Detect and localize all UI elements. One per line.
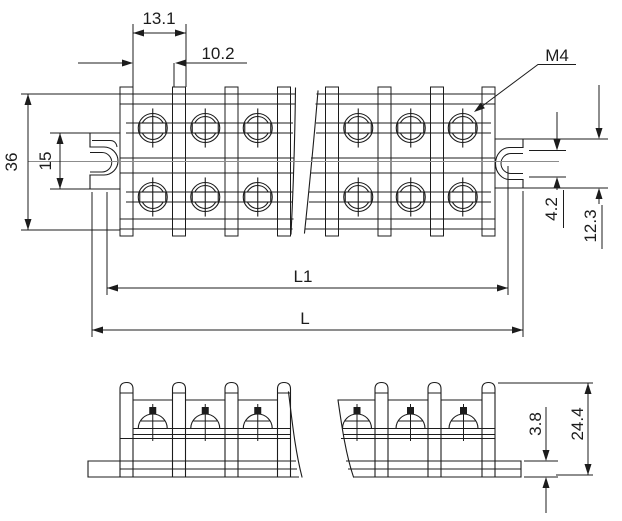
dim-base-thickness-label: 3.8 <box>526 412 545 436</box>
dim-clearance: 10.2 <box>78 44 247 87</box>
front-left-flange <box>88 461 120 477</box>
dim-right-ear-label: 12.3 <box>581 209 600 242</box>
terminal-screw <box>191 178 220 216</box>
break-line-left-half <box>291 88 296 234</box>
terminal-arch <box>138 404 167 441</box>
front-post <box>428 383 441 478</box>
dim-body-width: 36 <box>2 94 120 230</box>
mounting-ear-right <box>495 139 523 188</box>
dim-slot-height-label: 4.2 <box>542 197 561 221</box>
plan-left-center-band <box>120 158 294 173</box>
terminal-arch <box>191 404 220 441</box>
thread-label: M4 <box>545 46 569 65</box>
drawing-canvas: 13.1 10.2 M4 36 15 4.2 1 <box>0 0 622 521</box>
mounting-ear-left <box>90 133 120 189</box>
front-right-strip-lines <box>341 429 495 439</box>
terminal-screw <box>243 178 272 216</box>
terminal-arch <box>396 404 425 441</box>
terminal-screw <box>138 109 167 147</box>
dim-overall-height-label: 24.4 <box>568 407 587 440</box>
dim-right-ear: 12.3 <box>581 85 603 249</box>
terminal-screw <box>448 109 477 147</box>
terminal-screw <box>344 109 373 147</box>
terminal-arch <box>449 404 478 441</box>
dim-overall-length-label: L <box>300 309 309 328</box>
front-view-left <box>88 383 302 478</box>
dim-inner-length-label: L1 <box>294 267 313 286</box>
front-post <box>225 383 238 478</box>
front-post <box>375 383 388 478</box>
terminal-screw <box>396 109 425 147</box>
dim-pitch: 13.1 <box>133 9 186 87</box>
break-line-right-half <box>305 91 319 233</box>
dim-clearance-label: 10.2 <box>201 44 234 63</box>
dim-slot-height: 4.2 <box>529 112 566 228</box>
terminal-screw <box>448 178 477 216</box>
terminal-screw <box>344 178 373 216</box>
front-post <box>173 383 186 478</box>
right-ear-extension-lines <box>499 139 608 188</box>
front-post <box>482 383 495 478</box>
front-view-right <box>338 383 521 478</box>
dim-base-thickness: 3.8 <box>524 407 558 513</box>
terminal-screw <box>243 109 272 147</box>
dim-overall-length: L <box>92 191 523 337</box>
terminal-screw <box>138 178 167 216</box>
dim-left-ear: 15 <box>36 133 92 189</box>
dim-body-width-label: 36 <box>2 153 21 172</box>
terminal-arch <box>243 404 272 441</box>
plan-right-center-band <box>310 158 495 173</box>
terminal-arch <box>343 404 372 441</box>
terminal-screw <box>396 178 425 216</box>
thread-callout: M4 <box>474 46 576 112</box>
dim-inner-length: L1 <box>107 166 508 295</box>
terminal-block-drawing: 13.1 10.2 M4 36 15 4.2 1 <box>0 0 622 521</box>
terminal-screw <box>191 109 220 147</box>
dim-left-ear-label: 15 <box>36 152 55 171</box>
front-post <box>120 383 133 478</box>
dim-pitch-label: 13.1 <box>142 9 175 28</box>
